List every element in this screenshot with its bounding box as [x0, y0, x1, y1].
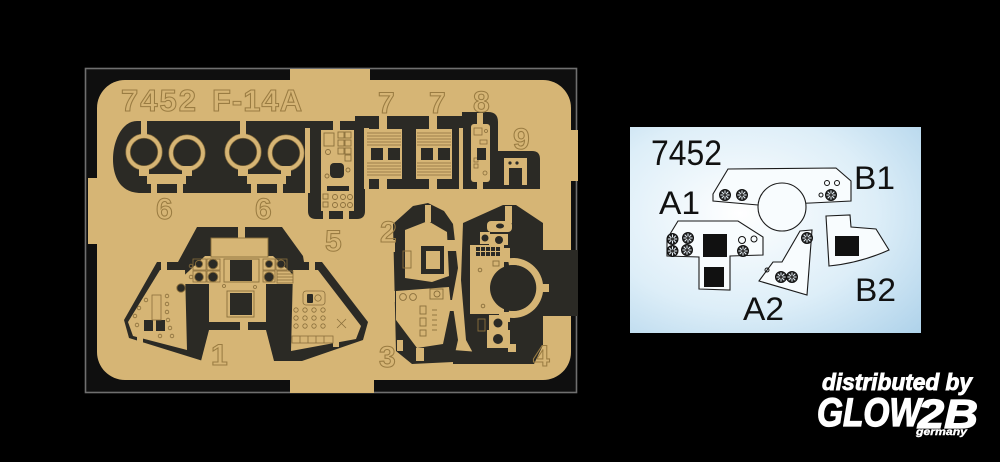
- svg-text:7452: 7452: [651, 134, 722, 173]
- svg-text:8: 8: [473, 86, 490, 119]
- svg-text:B1: B1: [854, 160, 895, 196]
- svg-text:A2: A2: [743, 291, 784, 327]
- svg-text:6: 6: [156, 193, 173, 226]
- svg-text:B2: B2: [855, 272, 896, 308]
- svg-text:GLOW: GLOW: [817, 391, 924, 435]
- svg-text:7452: 7452: [121, 83, 198, 118]
- svg-text:3: 3: [379, 341, 396, 374]
- svg-text:1: 1: [211, 339, 228, 372]
- svg-text:A1: A1: [659, 185, 700, 221]
- svg-text:7: 7: [378, 87, 395, 120]
- svg-text:5: 5: [325, 225, 342, 258]
- svg-text:F-14A: F-14A: [212, 83, 303, 118]
- svg-text:7: 7: [429, 87, 446, 120]
- svg-text:germany: germany: [915, 426, 969, 438]
- svg-text:4: 4: [533, 340, 550, 373]
- svg-text:6: 6: [255, 193, 272, 226]
- svg-text:2: 2: [380, 216, 397, 249]
- svg-text:9: 9: [513, 123, 530, 156]
